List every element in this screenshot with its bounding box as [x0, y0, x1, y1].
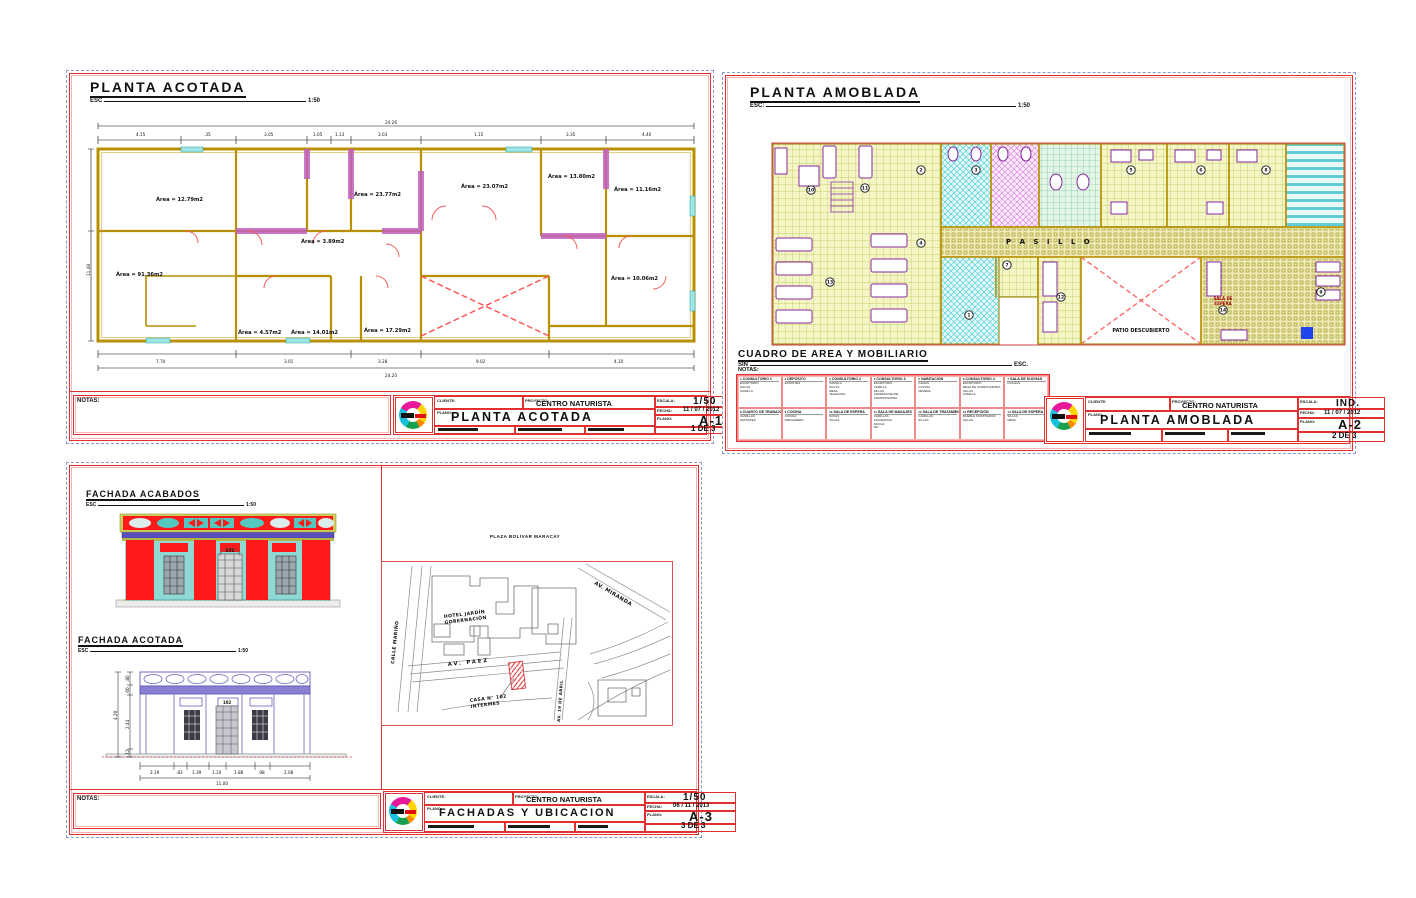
svg-text:Área = 4.57m2: Área = 4.57m2 [238, 329, 282, 336]
sheet2-title: PLANTA AMOBLADA [750, 84, 920, 103]
codigo-label: PLANO: [657, 416, 672, 421]
esc-label: ESC: [750, 103, 764, 109]
svg-text:10: 10 [808, 188, 814, 194]
sheet2-titleblock: CLIENTE: PROYECTO: CENTRO NATURISTA PLAN… [1044, 396, 1350, 444]
svg-text:3.05: 3.05 [264, 132, 274, 137]
svg-text:Área = 11.16m2: Área = 11.16m2 [614, 186, 661, 193]
cuadro-cell: 4 CONSULTORIO 3ESCRITORIOCAMILLASILLASLA… [871, 375, 916, 408]
sheet1-notas-box: NOTAS: [73, 395, 391, 435]
street-miranda-label: AV. MIRANDA [593, 581, 633, 608]
plan-amoblada-drawing: P A S I L L O PATIO DESCUBIERTO SALA DE … [771, 142, 1346, 346]
sheet1-titleblock: CLIENTE: PROYECTO: CENTRO NATURISTA PLAN… [393, 395, 707, 435]
sheet3-notas-box: NOTAS: [73, 793, 381, 829]
sheet2-scale-row: ESC: 1:50 [750, 103, 1030, 109]
dim-total: 11.00 [216, 781, 228, 786]
svg-text:9.02: 9.02 [476, 359, 486, 364]
svg-text:4.40: 4.40 [642, 132, 652, 137]
plaza-label: PLAZA BOLIVAR MARACAY [400, 534, 650, 539]
svg-text:11: 11 [862, 186, 868, 192]
sheet-a2-frame: PLANTA AMOBLADA ESC: 1:50 [725, 75, 1353, 451]
cuadro-cell: 12 SALA DE TRATAMIENTOCAMILLASSILLAS [915, 408, 960, 441]
pasillo-label: P A S I L L O [1006, 238, 1093, 246]
plano-value: PLANTA AMOBLADA [1100, 413, 1255, 427]
plan-acotada-drawing: 24.26 4.15 .35 3.05 1.05 1.13 3.03 1.15 … [86, 116, 698, 388]
codigo-value: A-2 [1338, 417, 1362, 432]
area-labels: Área = 12.79m2 Área = 23.77m2 Área = 23.… [116, 173, 661, 336]
cuadro-cell: 6 CONSULTORIO 4ESCRITORIOMESA DE COMPUTA… [960, 375, 1005, 408]
svg-text:1.13: 1.13 [335, 132, 345, 137]
svg-text:2.44: 2.44 [125, 719, 130, 729]
sheet-a1: PLANTA ACOTADA ESC 1:50 24.26 4.15 .35 3… [66, 70, 714, 444]
fachada-acotada-title: FACHADA ACOTADA [78, 635, 183, 647]
svg-text:2.19: 2.19 [150, 770, 160, 775]
cliente-label: CLIENTE: [437, 398, 455, 403]
notas-label: NOTAS: [77, 398, 100, 404]
svg-text:1.10: 1.10 [212, 770, 222, 775]
svg-text:.12: .12 [125, 749, 130, 756]
sheet-a3: FACHADA ACABADOS ESC1:50 [66, 462, 702, 838]
street-calle-label: CALLE MARIÑO [389, 620, 401, 664]
svg-text:4.15: 4.15 [136, 132, 146, 137]
svg-text:.60: .60 [125, 687, 130, 694]
svg-text:Área = 91.36m2: Área = 91.36m2 [116, 271, 163, 278]
fachada-acotada-drawing: 102 2.19 .83 1.39 1.10 1.88 .98 2.08 11.… [100, 654, 360, 786]
cuadro-cell: 7 SALA DE DUCHASDUCHAS [1004, 375, 1049, 408]
sheet-a1-frame: PLANTA ACOTADA ESC 1:50 24.26 4.15 .35 3… [69, 73, 711, 441]
svg-text:1.05: 1.05 [313, 132, 323, 137]
dim-bottom-total: 24.20 [385, 373, 397, 378]
svg-text:9: 9 [1319, 290, 1322, 296]
svg-text:5: 5 [1129, 168, 1132, 174]
svg-text:4: 4 [919, 241, 922, 247]
svg-text:.80: .80 [125, 675, 130, 682]
sheet-a3-frame: FACHADA ACABADOS ESC1:50 [69, 465, 699, 835]
sheet3-titleblock: CLIENTE: PROYECTO: CENTRO NATURISTA PLAN… [383, 791, 697, 833]
cad-layout-canvas: { "colors":{"sheet_border":"#e03030","pi… [0, 0, 1416, 898]
patio-x [421, 276, 549, 336]
svg-text:1: 1 [967, 313, 970, 319]
cuadro-title: CUADRO DE AREA Y MOBILIARIO [738, 349, 928, 362]
svg-text:2: 2 [919, 168, 922, 174]
dimensions-bottom [98, 350, 694, 371]
dim-left-total: 4.20 [113, 710, 118, 720]
plano-value: PLANTA ACOTADA [451, 410, 593, 424]
svg-text:Área = 10.06m2: Área = 10.06m2 [611, 275, 658, 282]
cuadro-scale-row: SINESC. [738, 362, 1028, 368]
lamina-value: 3 DE 3 [681, 821, 705, 830]
cuadro-cell: 2 DEPOSITOESTANTES [782, 375, 827, 408]
cuadro-table: 1 CONSULTORIO 1ESCRITORIOSILLASCAMILLA 2… [736, 374, 1050, 442]
svg-text:Área = 17.29m2: Área = 17.29m2 [364, 327, 411, 334]
svg-text:7: 7 [1005, 263, 1008, 269]
cuadro-notas-label: NOTAS: [738, 367, 759, 373]
door-number-2: 102 [223, 700, 232, 705]
svg-text:3.03: 3.03 [378, 132, 388, 137]
svg-text:3: 3 [974, 168, 977, 174]
svg-text:Área = 14.01m2: Área = 14.01m2 [291, 329, 338, 336]
fachada1-scale-row: ESC1:50 [86, 502, 256, 508]
svg-text:14: 14 [1220, 308, 1226, 314]
proyecto-value: CENTRO NATURISTA [1182, 401, 1258, 410]
svg-text:.83: .83 [176, 770, 183, 775]
svg-text:2.08: 2.08 [284, 770, 294, 775]
fachada-acabados-drawing: 102 [110, 510, 346, 614]
esc-value: 1:50 [1018, 103, 1030, 109]
door-number: 102 [225, 548, 234, 554]
sheet1-title: PLANTA ACOTADA [90, 79, 246, 98]
svg-text:.35: .35 [204, 132, 211, 137]
svg-text:4.10: 4.10 [614, 359, 624, 364]
cuadro-cell: 10 SALA DE ESPERASOFASSILLAS [826, 408, 871, 441]
fecha-value: 11 / 07 / 2012 [1324, 410, 1360, 416]
hatched-walls [236, 149, 609, 239]
svg-text:3.01: 3.01 [284, 359, 294, 364]
cuadro-cell: 1 CONSULTORIO 1ESCRITORIOSILLASCAMILLA [737, 375, 782, 408]
cuadro-cell: 9 COCINACOCINAFREGADERO [782, 408, 827, 441]
cuadro-cell: 11 SALA DE MASAJESCAMILLASLAVAMANOSDUCHA… [871, 408, 916, 441]
esc-value: 1:50 [308, 98, 320, 104]
svg-text:1.88: 1.88 [234, 770, 244, 775]
proyecto-value: CENTRO NATURISTA [526, 795, 602, 804]
dimensions-top [98, 123, 694, 144]
cuadro-cell: 13 RECEPCIÓNMUEBLE MOSTRADORSILLAS [960, 408, 1005, 441]
facade-openings: 102 [184, 700, 268, 754]
svg-text:Área = 13.80m2: Área = 13.80m2 [548, 173, 595, 180]
logo [385, 793, 423, 831]
svg-text:1.15: 1.15 [474, 132, 484, 137]
dimensions-left [88, 149, 94, 341]
sheet1-band [70, 391, 710, 392]
svg-text:6: 6 [1199, 168, 1202, 174]
svg-text:12: 12 [1058, 295, 1064, 301]
svg-text:Área = 23.77m2: Área = 23.77m2 [354, 191, 401, 198]
logo [395, 397, 433, 433]
svg-text:3.28: 3.28 [378, 359, 388, 364]
escala-label: ESCALA: [657, 398, 675, 403]
svg-text:3.35: 3.35 [566, 132, 576, 137]
svg-text:Área = 3.89m2: Área = 3.89m2 [301, 238, 345, 245]
svg-text:7.70: 7.70 [156, 359, 166, 364]
lamina-value: 1 DE 3 [691, 424, 715, 433]
dim-left-total: 11.48 [86, 264, 91, 276]
fachada-acabados-title: FACHADA ACABADOS [86, 489, 200, 501]
svg-text:1.39: 1.39 [192, 770, 202, 775]
map-drawing: HOTEL JARDÍN GOBERNACIÓN AV. PAEZ AV. MI… [382, 562, 670, 723]
esc-label: ESC [90, 98, 102, 104]
sheet-a2: PLANTA AMOBLADA ESC: 1:50 [722, 72, 1356, 454]
proyecto-value: CENTRO NATURISTA [536, 399, 612, 408]
facade-color: 102 [116, 514, 340, 607]
hotel-label: HOTEL JARDÍN GOBERNACIÓN [443, 607, 488, 626]
logo [1046, 398, 1084, 442]
sheet1-scale-row: ESC 1:50 [90, 98, 320, 104]
notas-label: NOTAS: [77, 796, 100, 802]
svg-text:13: 13 [827, 280, 833, 286]
svg-text:.98: .98 [258, 770, 265, 775]
svg-text:Área = 23.07m2: Área = 23.07m2 [461, 183, 508, 190]
sheet3-band [70, 789, 698, 790]
site-parcel [500, 661, 526, 698]
lamina-value: 2 DE 3 [1332, 431, 1356, 440]
svg-text:8: 8 [1264, 168, 1267, 174]
dim-top-total: 24.26 [385, 120, 397, 125]
sala-espera-label-2: ESPERA [1214, 301, 1232, 306]
fecha-label: FECHA: [657, 408, 672, 413]
svg-text:Área = 12.79m2: Área = 12.79m2 [156, 196, 203, 203]
cuadro-cell: 14 SALA DE ESPERASILLASMESA [1004, 408, 1049, 441]
cuadro-cell: 3 CONSULTORIO 2CAMILLASILLASMESATELEFONO [826, 375, 871, 408]
street-paez-label: AV. PAEZ [448, 658, 490, 668]
patio-label: PATIO DESCUBIERTO [1112, 328, 1169, 334]
cuadro-cell: 8 CUARTO DE TRABAJOCAMILLASESTANTES [737, 408, 782, 441]
plano-value: FACHADAS Y UBICACION [439, 807, 616, 819]
cuadro-cell: 5 HABITACIÓNCAMASCOCINANEVERA [915, 375, 960, 408]
map-panel: HOTEL JARDÍN GOBERNACIÓN AV. PAEZ AV. MI… [381, 561, 673, 726]
